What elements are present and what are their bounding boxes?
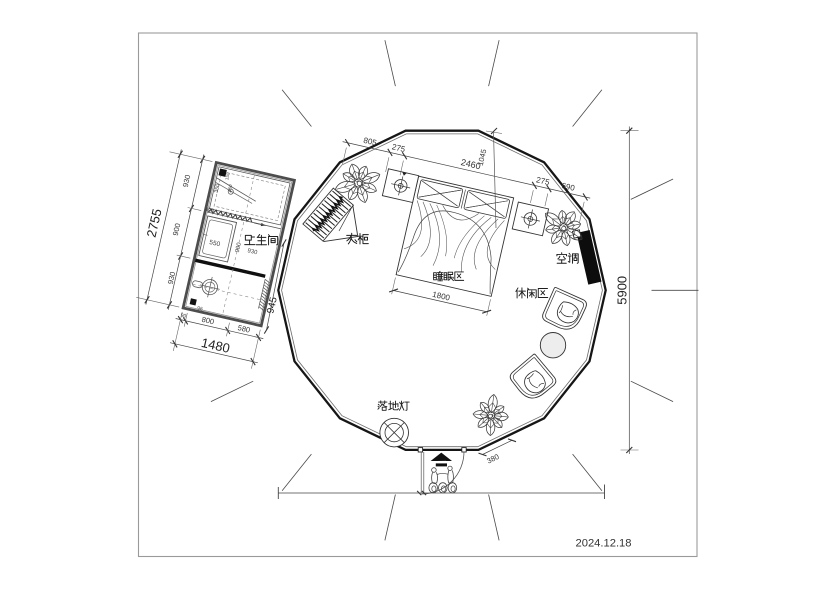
svg-text:1480: 1480 [200, 335, 232, 356]
svg-text:380: 380 [485, 452, 500, 466]
svg-text:900: 900 [171, 222, 183, 236]
svg-text:945: 945 [265, 296, 280, 315]
svg-text:275: 275 [391, 142, 407, 154]
svg-text:5900: 5900 [615, 276, 630, 305]
svg-text:805: 805 [363, 136, 379, 148]
svg-text:930: 930 [181, 174, 193, 188]
svg-text:2755: 2755 [144, 207, 165, 239]
svg-text:930: 930 [166, 271, 178, 285]
svg-text:2024.12.18: 2024.12.18 [576, 538, 632, 550]
svg-text:275: 275 [535, 175, 551, 187]
svg-text:1800: 1800 [431, 290, 451, 303]
svg-text:1045: 1045 [476, 148, 489, 166]
